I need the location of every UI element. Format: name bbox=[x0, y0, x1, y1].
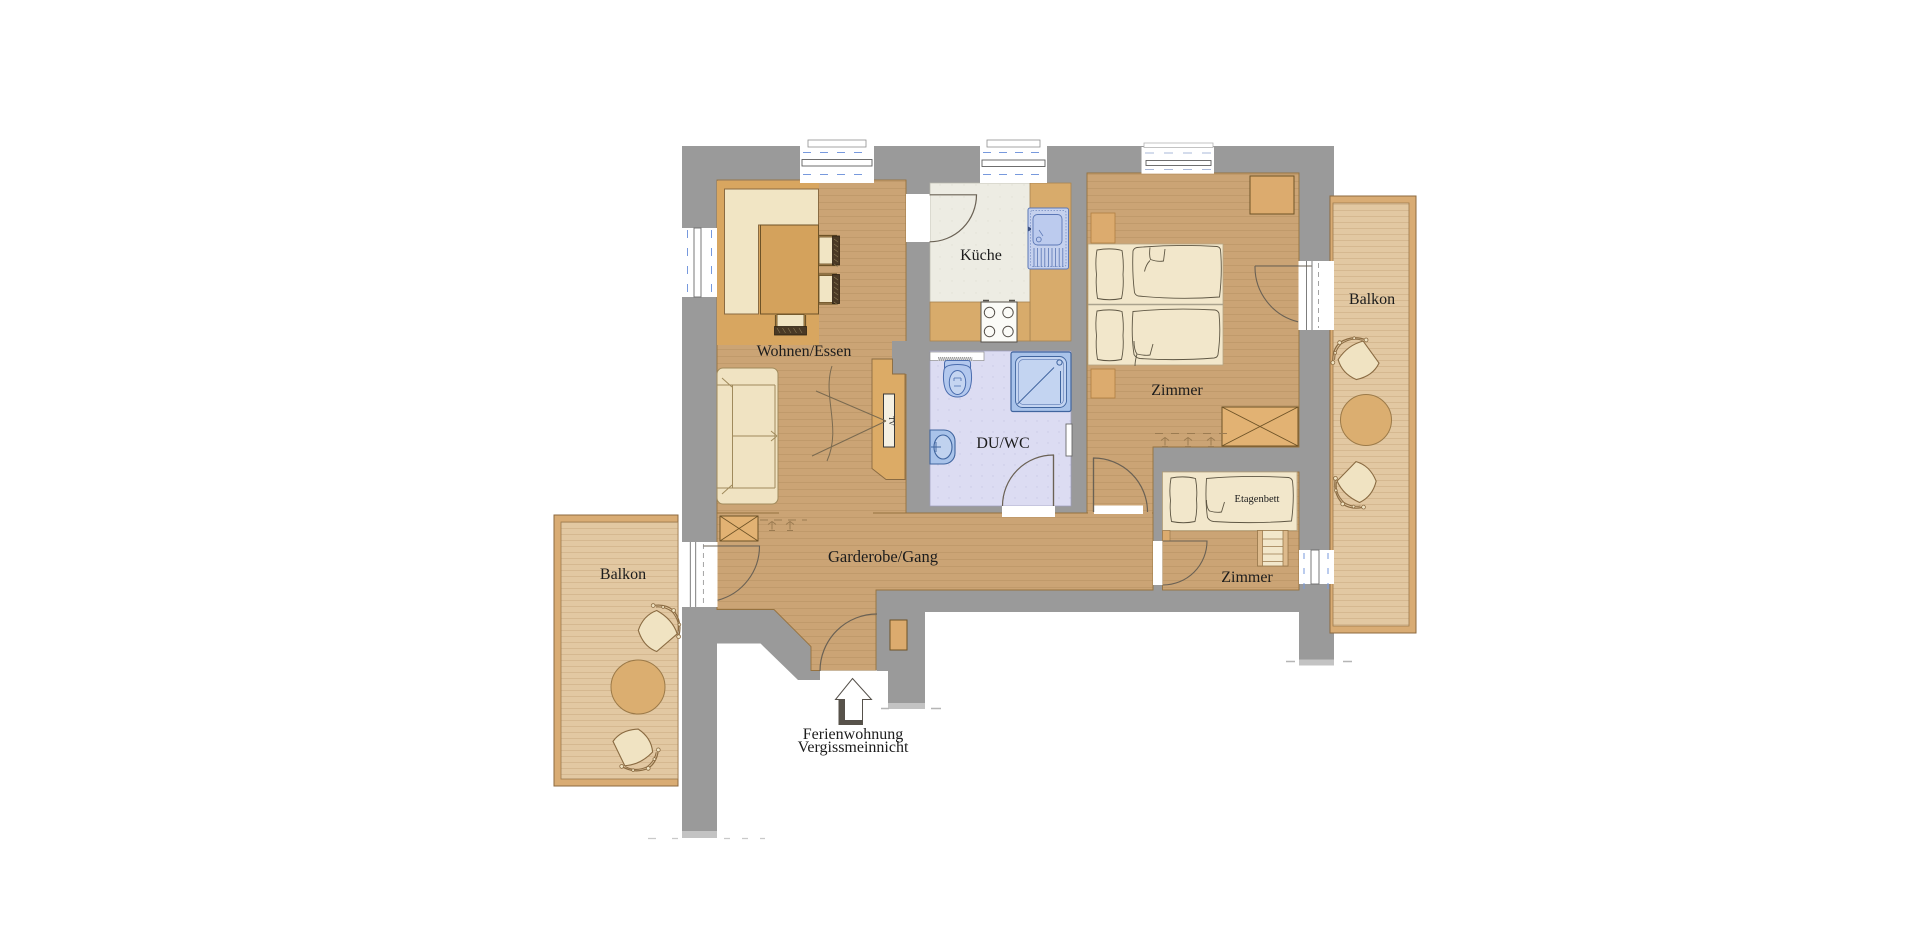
svg-text:Wohnen/Essen: Wohnen/Essen bbox=[757, 343, 852, 360]
svg-text:DU/WC: DU/WC bbox=[976, 435, 1029, 452]
svg-text:Küche: Küche bbox=[960, 247, 1002, 264]
svg-text:Zimmer: Zimmer bbox=[1151, 382, 1203, 399]
svg-text:Etagenbett: Etagenbett bbox=[1235, 494, 1280, 505]
svg-text:TV: TV bbox=[887, 416, 895, 425]
svg-text:Vergissmeinnicht: Vergissmeinnicht bbox=[798, 739, 909, 756]
svg-text:Balkon: Balkon bbox=[600, 566, 646, 583]
svg-text:Zimmer: Zimmer bbox=[1221, 569, 1273, 586]
svg-text:Balkon: Balkon bbox=[1349, 291, 1395, 308]
svg-text:Garderobe/Gang: Garderobe/Gang bbox=[828, 547, 938, 566]
